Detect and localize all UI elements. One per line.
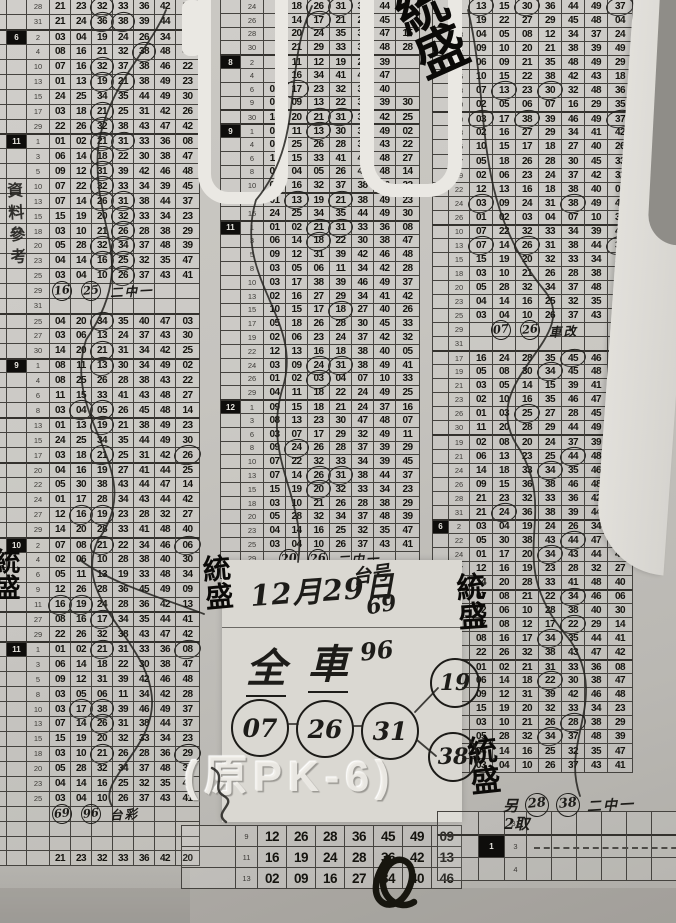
day-cell: 1: [240, 399, 264, 414]
number-cell: [576, 857, 602, 881]
number-cell: 22: [538, 589, 562, 604]
number-cell: 35: [112, 89, 134, 105]
number-cell: 01: [49, 133, 71, 149]
number-cell: 12: [492, 687, 516, 702]
gutter-cell: [437, 834, 479, 858]
number-cell: 34: [133, 358, 155, 374]
number-cell: 20: [91, 731, 113, 747]
number-cell: 24: [91, 597, 113, 613]
number-cell: 03: [469, 266, 493, 281]
number-cell: 14: [492, 238, 516, 253]
number-cell: 15: [285, 151, 308, 166]
draw-row: 30212933354828: [221, 41, 420, 55]
day-cell: 26: [448, 406, 470, 421]
number-cell: 26: [307, 468, 330, 483]
number-cell: 19: [286, 846, 316, 868]
number-cell: 49: [154, 432, 176, 448]
number-cell: 07: [49, 59, 71, 75]
number-cell: 24: [351, 385, 374, 400]
day-cell: 20: [26, 462, 50, 478]
number-cell: 23: [70, 0, 92, 15]
special-number-cell: 22: [395, 178, 420, 193]
number-cell: 07: [469, 238, 493, 253]
number-cell: 34: [112, 238, 134, 254]
number-cell: 01: [263, 372, 286, 387]
number-cell: 14: [49, 522, 71, 538]
number-cell: 09: [49, 163, 71, 179]
day-cell: 20: [26, 761, 50, 777]
number-cell: 43: [584, 758, 608, 773]
month-cell: [6, 283, 27, 299]
number-cell: [263, 0, 286, 14]
number-cell: 06: [492, 603, 516, 618]
month-cell: [432, 463, 449, 478]
special-number-cell: 30: [175, 328, 200, 344]
number-cell: 34: [91, 313, 113, 329]
number-cell: 26: [492, 645, 516, 660]
day-cell: 31: [26, 298, 50, 314]
number-cell: 21: [91, 44, 113, 60]
number-cell: 19: [91, 507, 113, 523]
number-cell: 11: [469, 420, 493, 435]
number-cell: 41: [584, 378, 608, 393]
number-cell: 05: [469, 533, 493, 548]
number-cell: 21: [329, 399, 352, 414]
number-cell: 04: [49, 776, 71, 792]
number-cell: 46: [373, 178, 396, 193]
number-cell: 04: [469, 294, 493, 309]
gutter-cell: [181, 867, 236, 889]
special-number-cell: 29: [395, 496, 420, 511]
day-cell: 18: [240, 496, 264, 511]
number-cell: 13: [285, 344, 308, 359]
day-cell: 19: [240, 330, 264, 345]
month-cell: [432, 83, 449, 98]
number-cell: 06: [49, 148, 71, 164]
day-cell: 28: [26, 0, 50, 15]
number-cell: 38: [112, 626, 134, 642]
number-cell: 27: [561, 139, 585, 154]
month-cell: [432, 139, 449, 154]
hw-circled-number: 38: [555, 792, 581, 818]
number-cell: 16: [285, 289, 308, 304]
day-cell: 25: [26, 313, 50, 329]
day-cell: [26, 850, 50, 866]
special-number-cell: 14: [175, 477, 200, 493]
gutter-cell: [437, 857, 479, 881]
number-cell: 21: [285, 40, 308, 55]
month-cell: [432, 182, 449, 197]
number-cell: 28: [515, 350, 539, 365]
number-cell: 25: [112, 253, 134, 269]
number-cell: 49: [373, 427, 396, 442]
number-cell: 21: [91, 537, 113, 553]
number-cell: 01: [49, 417, 71, 433]
number-cell: 35: [584, 294, 608, 309]
number-cell: 22: [285, 454, 308, 469]
day-cell: 4: [504, 857, 527, 881]
number-cell: 31: [329, 220, 352, 235]
number-cell: 21: [351, 54, 374, 69]
draw-row: 2922263238434742: [0, 120, 200, 135]
day-cell: 25: [240, 537, 264, 552]
number-cell: 36: [515, 505, 539, 520]
number-cell: 31: [91, 671, 113, 687]
number-cell: 25: [538, 743, 562, 758]
draw-row: 611153341434827: [221, 152, 420, 166]
number-cell: 38: [584, 715, 608, 730]
number-cell: 26: [329, 165, 352, 180]
draw-row: 1116192428364213: [182, 847, 462, 868]
number-cell: 31: [538, 196, 562, 211]
month-cell: [220, 151, 241, 166]
number-cell: 28: [561, 266, 585, 281]
number-cell: 36: [515, 477, 539, 492]
number-cell: 49: [373, 385, 396, 400]
number-cell: 23: [515, 168, 539, 183]
number-cell: 45: [133, 582, 155, 598]
draw-row: 1007223233343945: [433, 225, 633, 239]
day-cell: 31: [26, 14, 50, 30]
number-cell: 13: [307, 96, 330, 111]
day-cell: 19: [448, 364, 470, 379]
number-cell: 34: [351, 454, 374, 469]
day-cell: 13: [240, 192, 264, 207]
special-number-cell: 30: [175, 89, 200, 105]
number-cell: 46: [351, 275, 374, 290]
day-cell: 27: [26, 507, 50, 523]
draw-row: 08161734354441: [433, 632, 633, 646]
special-number-cell: 03: [175, 313, 200, 329]
draw-row: 2205303843444714: [433, 534, 633, 548]
number-cell: 28: [344, 846, 374, 868]
month-cell: [432, 154, 449, 169]
number-cell: 48: [584, 13, 608, 28]
month-cell: [432, 322, 449, 337]
special-number-cell: 23: [175, 74, 200, 90]
day-cell: 28: [448, 491, 470, 506]
number-cell: 33: [112, 0, 134, 15]
number-cell: 42: [561, 687, 585, 702]
draw-row: 912262836454909: [0, 583, 200, 598]
number-cell: 17: [285, 275, 308, 290]
number-cell: 19: [515, 519, 539, 534]
number-cell: 38: [561, 41, 585, 56]
number-cell: 30: [561, 673, 585, 688]
note-tag: 台号: [350, 557, 391, 589]
draw-row: [0, 822, 200, 837]
number-cell: 35: [351, 40, 374, 55]
number-cell: 37: [561, 280, 585, 295]
number-cell: 31: [112, 193, 134, 209]
number-cell: 03: [49, 447, 71, 463]
number-cell: 30: [515, 364, 539, 379]
month-cell: [6, 432, 27, 448]
number-cell: 32: [515, 729, 539, 744]
number-cell: 44: [154, 492, 176, 508]
draw-table-bottom-middle: 9122628364549091116192428364213130209162…: [182, 826, 462, 889]
day-cell: [26, 806, 50, 822]
day-cell: 2: [26, 29, 50, 45]
number-cell: 35: [538, 392, 562, 407]
number-cell: 14: [469, 463, 493, 478]
number-cell: 26: [133, 29, 155, 45]
draw-table-middle: 2418263139442614172128452820243539471530…: [221, 0, 420, 579]
number-cell: 03: [469, 378, 493, 393]
special-number-cell: 26: [395, 303, 420, 318]
number-cell: 32: [91, 761, 113, 777]
number-cell: 16: [515, 743, 539, 758]
number-cell: 39: [538, 111, 562, 126]
number-cell: 27: [538, 406, 562, 421]
number-cell: 24: [49, 89, 71, 105]
month-cell: [220, 192, 241, 207]
number-cell: 17: [538, 617, 562, 632]
number-cell: 18: [307, 399, 330, 414]
draw-row: 2708161734354441: [0, 612, 200, 627]
number-cell: 14: [285, 523, 308, 538]
number-cell: 44: [584, 547, 608, 562]
special-number-cell: 25: [175, 462, 200, 478]
handwritten-row-note: 6996台彩: [52, 804, 139, 824]
draw-row: 22263238434742: [433, 646, 633, 660]
special-number-cell: 47: [607, 743, 633, 758]
special-number-cell: 28: [395, 261, 420, 276]
special-number-cell: 04: [607, 13, 633, 28]
picked-number-circle: 07: [231, 699, 289, 757]
number-cell: 36: [133, 0, 155, 15]
special-number-cell: 08: [175, 641, 200, 657]
number-cell: 05: [469, 154, 493, 169]
special-number-cell: 30: [607, 603, 633, 618]
number-cell: 05: [492, 97, 516, 112]
number-cell: 16: [70, 462, 92, 478]
month-cell: [6, 74, 27, 90]
number-cell: 38: [538, 505, 562, 520]
number-cell: 26: [307, 0, 330, 14]
day-cell: 24: [26, 492, 50, 508]
number-cell: 48: [373, 413, 396, 428]
number-cell: 26: [91, 716, 113, 732]
day-cell: 5: [240, 247, 264, 262]
number-cell: 38: [154, 656, 176, 672]
month-cell: [6, 611, 27, 627]
number-cell: 13: [285, 192, 308, 207]
handwritten-row-note: 1625二中一: [52, 281, 154, 301]
number-cell: 28: [112, 597, 134, 613]
number-cell: 34: [307, 206, 330, 221]
number-cell: 22: [492, 224, 516, 239]
draw-row: 2304141625323547: [433, 295, 633, 309]
number-cell: 41: [561, 575, 585, 590]
special-number-cell: 11: [395, 427, 420, 442]
draw-row: 6021723323640: [221, 83, 420, 97]
number-cell: 38: [561, 238, 585, 253]
number-cell: 32: [351, 427, 374, 442]
draw-row: 2005283234374839: [0, 239, 200, 254]
month-cell: [6, 89, 27, 105]
number-cell: [133, 836, 155, 852]
number-cell: 10: [263, 303, 286, 318]
number-cell: 15: [263, 482, 286, 497]
number-cell: 28: [329, 316, 352, 331]
number-cell: 38: [515, 533, 539, 548]
month-cell: 12: [220, 399, 241, 414]
note-char-car: 車: [308, 632, 348, 693]
draw-row: 6996台彩: [0, 807, 200, 822]
number-cell: 48: [373, 165, 396, 180]
month-cell: [220, 261, 241, 276]
number-cell: 20: [307, 482, 330, 497]
number-cell: 30: [351, 234, 374, 249]
special-number-cell: 42: [175, 626, 200, 642]
day-cell: 26: [240, 13, 264, 28]
draw-row: 1803102126283829: [221, 497, 420, 511]
number-cell: 11: [263, 151, 286, 166]
number-cell: 23: [70, 850, 92, 866]
day-cell: 24: [240, 0, 264, 14]
number-cell: 11: [112, 686, 134, 702]
draw-row: 2821233233364220: [0, 0, 200, 15]
number-cell: 20: [515, 701, 539, 716]
number-cell: 39: [373, 454, 396, 469]
number-cell: 32: [91, 238, 113, 254]
number-cell: 01: [469, 210, 493, 225]
month-cell: [220, 344, 241, 359]
number-cell: 42: [154, 0, 176, 15]
day-cell: 10: [240, 275, 264, 290]
number-cell: 34: [154, 208, 176, 224]
month-cell: [6, 746, 27, 762]
month-cell: [6, 716, 27, 732]
day-cell: 27: [26, 328, 50, 344]
number-cell: 19: [469, 13, 493, 28]
day-cell: 9: [235, 825, 258, 847]
number-cell: [154, 836, 176, 852]
number-cell: [49, 836, 71, 852]
number-cell: 24: [329, 330, 352, 345]
special-number-cell: 42: [395, 289, 420, 304]
number-cell: 02: [469, 434, 493, 449]
draw-row: 3002050607162935: [433, 98, 633, 112]
number-cell: 38: [561, 182, 585, 197]
number-cell: 32: [515, 280, 539, 295]
number-cell: 05: [307, 165, 330, 180]
number-cell: 14: [70, 776, 92, 792]
day-cell: 6: [26, 387, 50, 403]
number-cell: 09: [263, 441, 286, 456]
draw-row: 1301131921384923: [221, 193, 420, 207]
number-cell: 08: [49, 44, 71, 60]
number-cell: 21: [538, 41, 562, 56]
number-cell: 36: [351, 82, 374, 97]
number-cell: [584, 322, 608, 337]
margin-label: 資料參考: [1, 181, 30, 270]
number-cell: 13: [70, 417, 92, 433]
draw-row: 1007223233343945: [0, 179, 200, 194]
special-number-cell: 26: [175, 447, 200, 463]
number-cell: 14: [492, 673, 516, 688]
month-cell: [6, 806, 27, 822]
month-cell: [6, 104, 27, 120]
number-cell: 26: [112, 402, 134, 418]
number-cell: 30: [133, 148, 155, 164]
number-cell: 04: [329, 372, 352, 387]
number-cell: 31: [112, 343, 134, 359]
number-cell: 28: [515, 575, 539, 590]
number-cell: 39: [154, 178, 176, 194]
number-cell: 21: [112, 74, 134, 90]
month-cell: [220, 96, 241, 111]
day-cell: 10: [26, 701, 50, 717]
number-cell: 02: [263, 82, 286, 97]
special-number-cell: 16: [395, 399, 420, 414]
number-cell: 21: [91, 447, 113, 463]
special-number-cell: 48: [395, 247, 420, 262]
day-cell: 11: [26, 597, 50, 613]
number-cell: 47: [351, 413, 374, 428]
month-cell: [6, 836, 27, 852]
day-cell: 13: [235, 867, 258, 889]
number-cell: 10: [373, 372, 396, 387]
number-cell: 40: [133, 313, 155, 329]
number-cell: [551, 834, 577, 858]
number-cell: 01: [49, 492, 71, 508]
month-cell: [6, 163, 27, 179]
day-cell: 18: [448, 266, 470, 281]
number-cell: 32: [515, 224, 539, 239]
number-cell: 22: [492, 13, 516, 28]
number-cell: 05: [263, 509, 286, 524]
special-number-cell: 06: [607, 589, 633, 604]
day-cell: 4: [26, 372, 50, 388]
number-cell: 37: [561, 729, 585, 744]
number-cell: 44: [584, 631, 608, 646]
special-number-cell: 47: [175, 253, 200, 269]
number-cell: 33: [351, 220, 374, 235]
number-cell: 17: [70, 492, 92, 508]
number-cell: 34: [538, 280, 562, 295]
number-cell: 28: [91, 582, 113, 598]
month-cell: [6, 776, 27, 792]
number-cell: 06: [307, 261, 330, 276]
number-cell: 27: [515, 13, 539, 28]
number-cell: 21: [49, 850, 71, 866]
number-cell: 07: [538, 97, 562, 112]
hw-circled-number: 28: [524, 792, 550, 818]
number-cell: 18: [70, 104, 92, 120]
day-cell: 28: [448, 83, 470, 98]
month-cell: [432, 336, 449, 351]
number-cell: 18: [307, 385, 330, 400]
hw-circled-number: 69: [51, 803, 73, 825]
number-cell: 14: [49, 343, 71, 359]
number-cell: 10: [492, 41, 516, 56]
number-cell: [263, 68, 286, 83]
number-cell: 10: [70, 223, 92, 239]
number-cell: 46: [154, 163, 176, 179]
number-cell: 26: [538, 715, 562, 730]
number-cell: 09: [263, 399, 286, 414]
number-cell: 18: [515, 673, 539, 688]
special-number-cell: 42: [175, 492, 200, 508]
special-number-cell: 37: [607, 0, 633, 14]
number-cell: 39: [329, 247, 352, 262]
number-cell: 25: [70, 432, 92, 448]
day-cell: 15: [26, 432, 50, 448]
number-cell: 07: [285, 427, 308, 442]
draw-row: 21233233364220: [0, 851, 200, 866]
